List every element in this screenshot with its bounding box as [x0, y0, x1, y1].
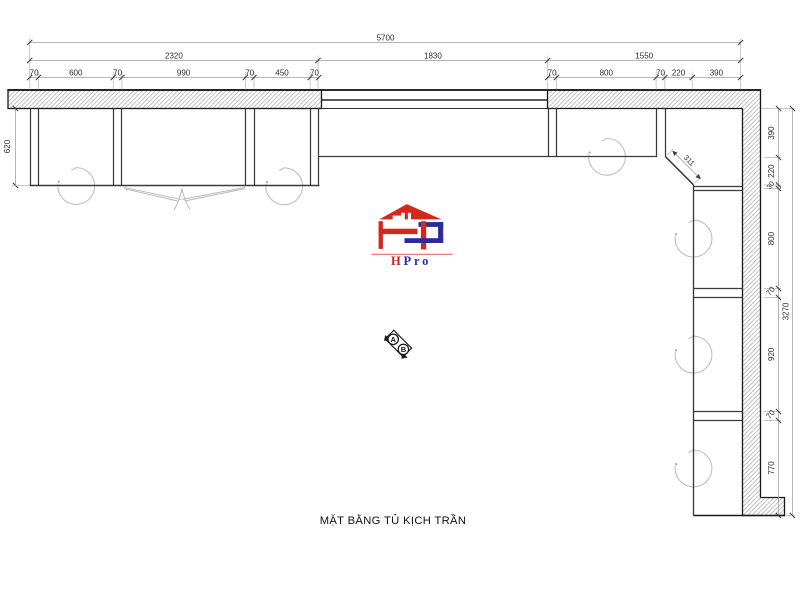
svg-text:5700: 5700 [377, 33, 395, 42]
svg-text:390: 390 [767, 126, 776, 140]
svg-text:220: 220 [672, 69, 686, 78]
svg-text:800: 800 [600, 69, 614, 78]
svg-text:620: 620 [3, 139, 12, 153]
svg-text:920: 920 [767, 347, 776, 361]
svg-text:70: 70 [30, 69, 39, 78]
svg-text:MẶT BẰNG TỦ KỊCH TRẦN: MẶT BẰNG TỦ KỊCH TRẦN [320, 514, 467, 527]
svg-text:800: 800 [767, 231, 776, 245]
svg-text:390: 390 [710, 69, 724, 78]
svg-text:70: 70 [245, 69, 254, 78]
svg-text:990: 990 [177, 69, 191, 78]
svg-text:HPro: HPro [391, 254, 431, 268]
svg-text:220: 220 [767, 164, 776, 178]
svg-text:770: 770 [767, 461, 776, 475]
svg-text:70: 70 [310, 69, 319, 78]
svg-text:70: 70 [113, 69, 122, 78]
svg-text:3270: 3270 [781, 302, 790, 320]
svg-text:450: 450 [275, 69, 289, 78]
svg-text:1550: 1550 [635, 51, 653, 60]
svg-text:70: 70 [656, 69, 665, 78]
svg-text:2320: 2320 [165, 51, 183, 60]
svg-text:600: 600 [69, 69, 83, 78]
svg-text:A: A [390, 335, 396, 344]
svg-text:B: B [401, 345, 407, 354]
svg-text:70: 70 [548, 69, 557, 78]
svg-text:1830: 1830 [424, 51, 442, 60]
